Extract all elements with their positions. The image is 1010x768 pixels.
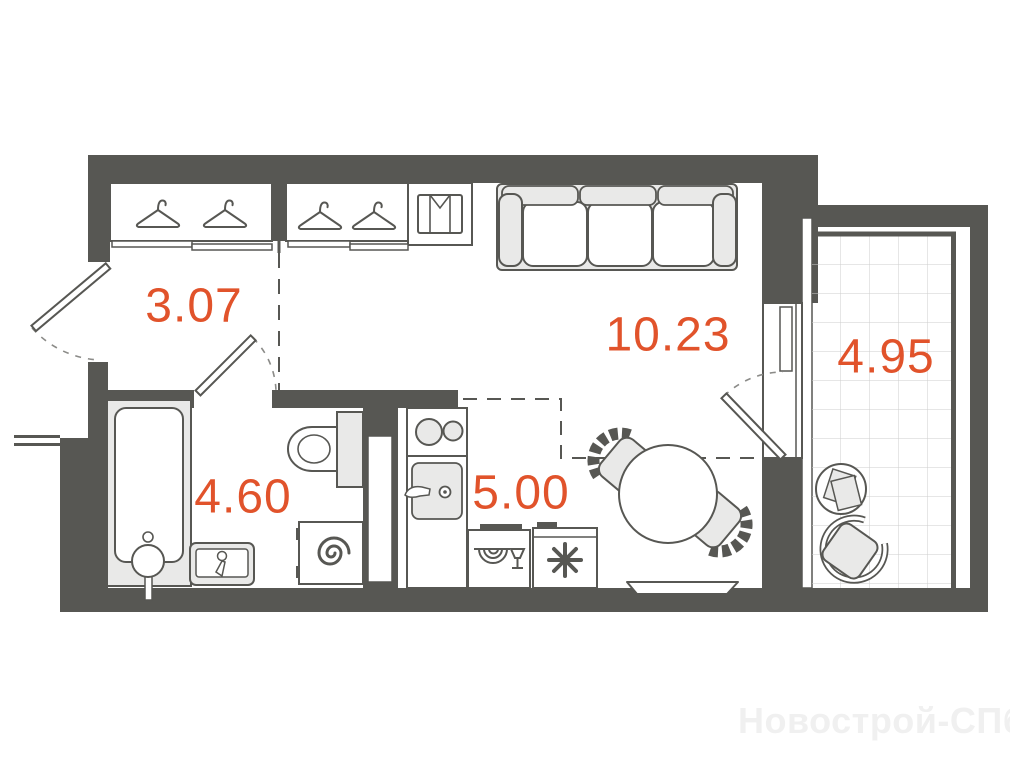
balcony-wall-top [812,205,988,227]
washing-machine [299,522,363,584]
sink-drain-dot [443,490,447,494]
ventilation-shaft [368,436,392,582]
stove-burner [444,422,463,441]
wall-right-lower [762,458,803,590]
balcony-window-unit [763,303,802,458]
wardrobe-box [286,183,408,241]
wall-left-upper [88,155,110,263]
door-leaf [196,335,256,395]
stove-burner [416,419,442,445]
sliding-door [112,241,192,247]
wardrobe-divider-line [278,241,281,253]
dining-table [619,445,717,543]
dishwasher-handle [480,524,522,529]
neighbor-wall-stub [14,443,60,446]
wall-bottom [60,588,988,612]
room-label-hallway: 3.07 [145,279,242,334]
washing-machine-hinge [296,528,299,540]
sliding-door [192,244,272,250]
balcony-glazing [802,218,812,588]
neighbor-wall-stub [14,435,60,438]
wardrobe-divider-wall [272,183,286,241]
floor-plan: 3.07 10.23 4.60 5.00 4.95 Новострой-СПб [0,0,1010,768]
room-label-balcony: 4.95 [837,330,934,385]
dishwasher [468,530,530,588]
washing-machine-hinge [296,566,299,578]
watermark: Новострой-СПб [738,700,992,742]
room-label-bathroom: 4.60 [194,470,291,525]
wardrobe-box [110,183,272,241]
balcony-wall-right [970,205,988,588]
door-swing-arc [253,338,276,391]
sofa [497,184,737,270]
room-label-living-room: 10.23 [605,308,730,363]
wardrobe [110,183,472,250]
bathtub-drain [132,545,164,577]
wall-left-lower-outer [60,438,88,588]
washbasin-drain [218,552,227,561]
shirt-icon [418,195,462,233]
toilet-tank [337,412,363,487]
sliding-door [350,244,408,250]
wall-cap [458,390,463,408]
radiator [627,582,738,594]
door-swing-arc [32,328,99,360]
bathroom-door [196,335,276,395]
entrance-door [31,263,110,360]
snowflake-icon [549,544,581,576]
toilet-bowl-inner [298,435,330,463]
sliding-door [288,241,350,247]
door-leaf [31,263,110,331]
bathtub-overflow [143,532,153,542]
wall-left-lower [88,358,108,588]
room-label-kitchen: 5.00 [472,466,569,521]
wall-top [88,155,818,183]
wall-kitchen-top [272,390,458,408]
fridge-handle [537,522,557,527]
